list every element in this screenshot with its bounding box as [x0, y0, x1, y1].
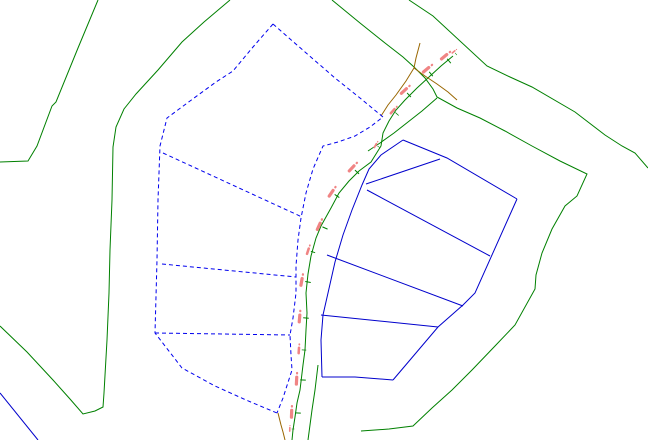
station-label-mark	[298, 313, 302, 323]
station-label-mark	[456, 49, 458, 51]
solid-lot-line-4	[321, 315, 438, 327]
station-label-mark	[309, 244, 311, 247]
outer-boundary-top-right	[409, 0, 648, 168]
survey-map-canvas[interactable]	[0, 0, 648, 440]
station-label-mark	[295, 376, 299, 386]
station-label-mark	[408, 84, 411, 87]
solid-lot-line-1	[366, 159, 440, 184]
station-marks-layer	[289, 48, 460, 432]
solid-fan-bottom-edge	[322, 377, 393, 380]
station-label-mark	[334, 185, 337, 188]
station-label-mark	[347, 164, 356, 173]
station-label-mark	[448, 50, 451, 53]
inner-boundary-right	[332, 0, 587, 431]
station-label-mark	[302, 273, 305, 276]
station-label-mark	[297, 346, 300, 354]
station-label-mark	[290, 409, 294, 419]
dashed-lot-line-2	[162, 264, 296, 277]
station-mark	[439, 50, 457, 67]
station-label-mark	[327, 188, 335, 198]
station-tick-icon	[305, 282, 311, 283]
station-label-mark	[289, 425, 290, 426]
station-label-mark	[320, 218, 323, 221]
boundary-lines-layer	[0, 0, 648, 440]
station-tick-icon	[455, 53, 457, 55]
outer-boundary-left-lower	[0, 0, 230, 414]
dashed-fan-road-edge	[273, 24, 383, 413]
station-mark	[347, 161, 364, 178]
dashed-lot-line-1	[163, 153, 302, 217]
station-label-mark	[355, 161, 358, 164]
solid-corner-southwest	[0, 393, 38, 440]
road-right-edge-lower	[308, 365, 318, 440]
station-label-mark	[305, 247, 310, 255]
station-label-mark	[289, 427, 291, 432]
station-label-mark	[373, 143, 378, 149]
solid-fan-top-edge	[403, 140, 517, 199]
station-mark	[315, 218, 330, 235]
station-tick-icon	[322, 227, 327, 229]
road-right-edge-upper	[368, 98, 437, 151]
station-label-mark	[296, 372, 298, 375]
station-mark	[298, 310, 310, 325]
station-mark	[299, 273, 312, 288]
solid-lot-line-2	[367, 190, 490, 256]
station-label-mark	[377, 141, 379, 143]
alignment-south	[278, 413, 285, 440]
parcel-lines-layer	[0, 140, 517, 440]
solid-lot-line-3	[327, 255, 463, 306]
solid-fan-right-edge	[393, 199, 517, 380]
station-label-mark	[298, 343, 300, 345]
dashed-lot-line-3	[155, 333, 290, 335]
alignment-northeast-spur	[414, 68, 457, 100]
station-mark	[451, 48, 460, 57]
station-tick-icon	[395, 113, 398, 116]
station-label-mark	[299, 277, 304, 287]
cad-map-viewport[interactable]	[0, 0, 648, 440]
station-label-mark	[299, 310, 301, 313]
station-label-mark	[291, 405, 293, 408]
dashed-fan-outline-left	[155, 24, 277, 413]
outer-boundary-left-upper	[0, 0, 98, 162]
station-label-mark	[430, 63, 433, 66]
